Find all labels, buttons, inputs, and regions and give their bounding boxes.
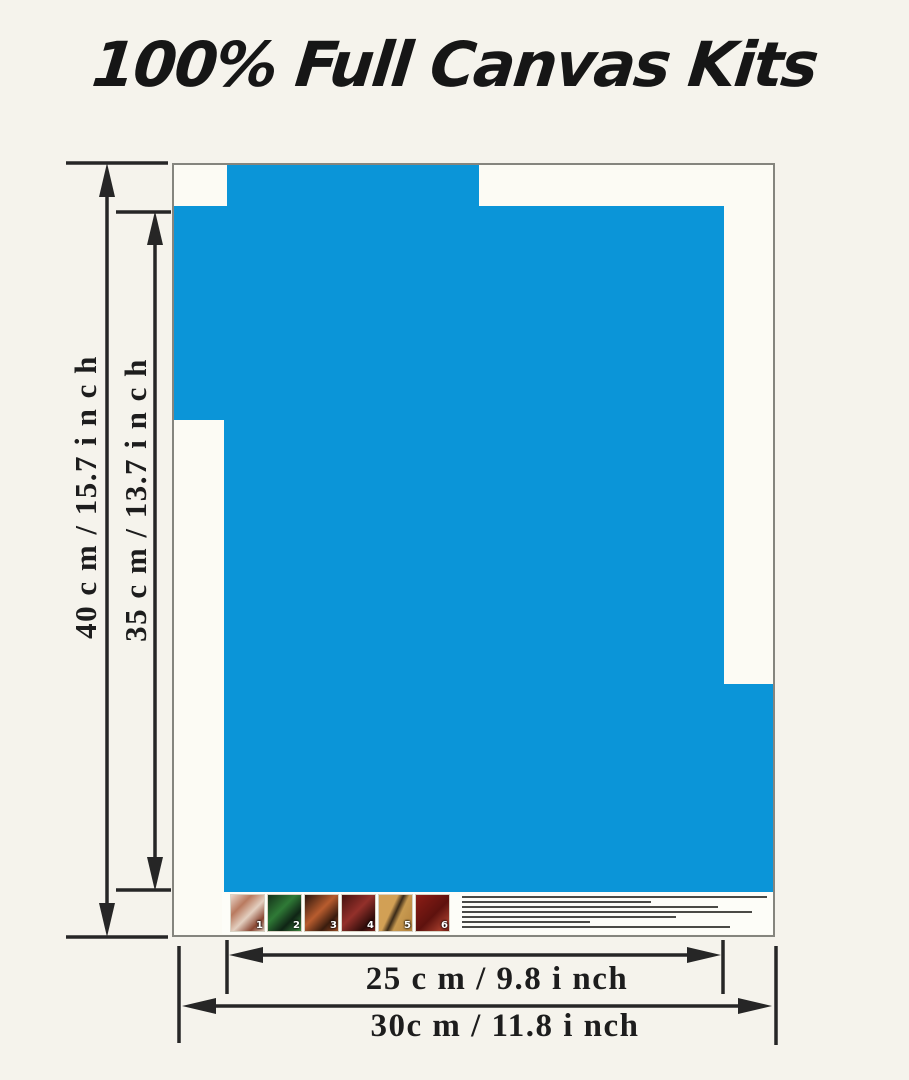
outer-width-arrow-left <box>182 998 216 1014</box>
product-size-diagram: 100% Full Canvas Kits 1 2 3 4 5 <box>0 0 909 1080</box>
fine-print-line <box>462 926 730 928</box>
inner-width-label: 25 c m / 9.8 i nch <box>247 961 747 997</box>
fine-print-line <box>462 906 718 908</box>
printed-area-shape <box>174 165 773 892</box>
page-title: 100% Full Canvas Kits <box>0 28 909 101</box>
instruction-step-thumbnail: 5 <box>378 894 413 932</box>
outer-width-label: 30c m / 11.8 i nch <box>255 1008 755 1044</box>
outer-height-arrow-up <box>99 163 115 197</box>
instruction-step-thumbnail: 1 <box>230 894 265 932</box>
instruction-step-thumbnail: 4 <box>341 894 376 932</box>
fine-print-line <box>462 911 752 913</box>
inner-height-arrow-up <box>147 211 163 245</box>
printed-area-svg <box>174 165 773 935</box>
fine-print-line <box>462 896 767 898</box>
instruction-step-thumbnail: 3 <box>304 894 339 932</box>
inner-height-label: 35 c m / 13.7 i n c h <box>117 275 155 725</box>
fine-print-line <box>462 901 651 903</box>
instruction-step-thumbnail: 6 <box>415 894 450 932</box>
instruction-thumbnails: 1 2 3 4 5 6 <box>230 894 452 932</box>
outer-height-label: 40 c m / 15.7 i n c h <box>67 272 105 722</box>
step-number: 2 <box>293 920 300 931</box>
step-number: 6 <box>441 920 448 931</box>
outer-height-arrow-down <box>99 903 115 937</box>
instruction-strip: 1 2 3 4 5 6 <box>222 892 773 934</box>
step-number: 1 <box>256 920 263 931</box>
fine-print-line <box>462 916 676 918</box>
fine-print-line <box>462 921 590 923</box>
instruction-fine-print <box>462 896 767 930</box>
canvas-outline: 1 2 3 4 5 6 <box>172 163 775 937</box>
step-number: 4 <box>367 920 374 931</box>
step-number: 3 <box>330 920 337 931</box>
inner-height-arrow-down <box>147 857 163 891</box>
step-number: 5 <box>404 920 411 931</box>
instruction-step-thumbnail: 2 <box>267 894 302 932</box>
